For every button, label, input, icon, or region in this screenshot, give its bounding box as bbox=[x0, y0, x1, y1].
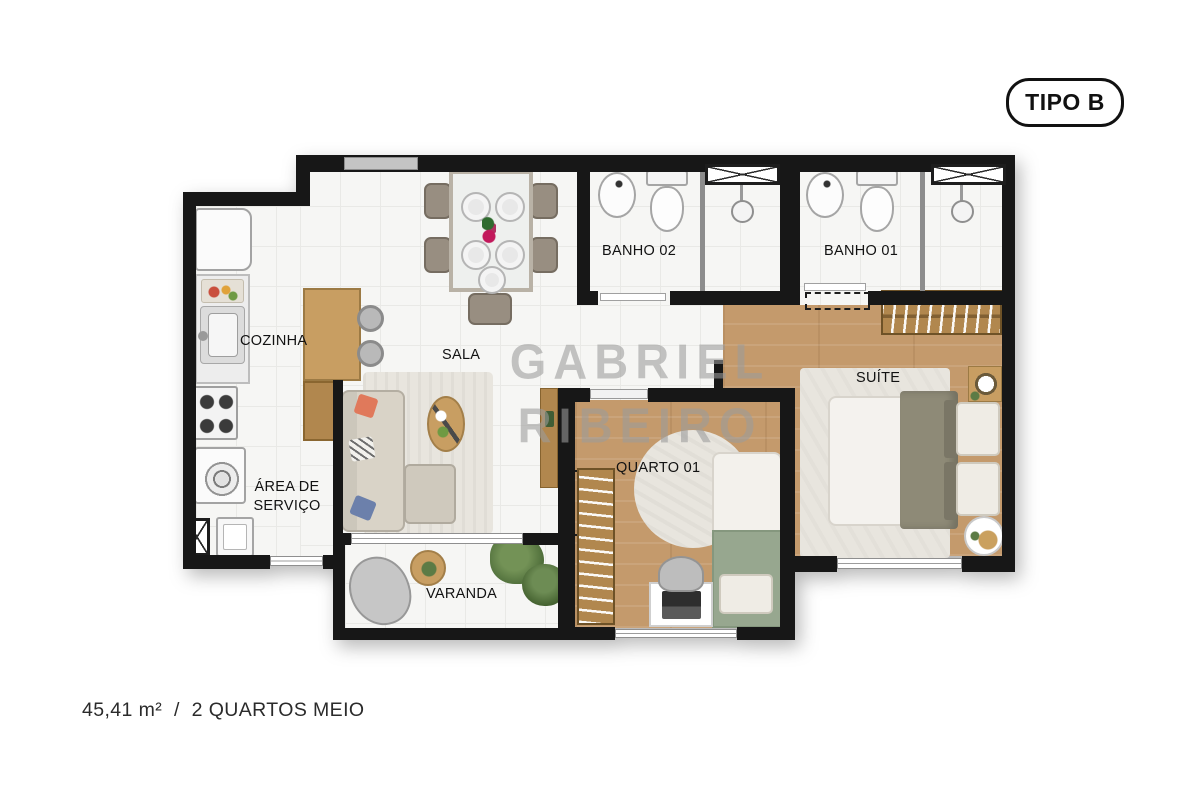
desk-chair bbox=[658, 556, 704, 592]
caption-description: 2 QUARTOS MEIO bbox=[192, 699, 365, 721]
bar-stool bbox=[357, 340, 384, 367]
wall-banho02-left bbox=[577, 155, 590, 305]
wall-varanda-bottom bbox=[333, 628, 575, 640]
unit-type-badge: TIPO B bbox=[1006, 78, 1124, 127]
bathroom-sink bbox=[598, 172, 636, 218]
watermark-line1: GABRIEL bbox=[500, 329, 780, 393]
bar-stool bbox=[357, 305, 384, 332]
sink-faucet bbox=[198, 331, 208, 341]
wall-sala-varanda-left-stub bbox=[343, 533, 351, 545]
dining-chair bbox=[424, 237, 452, 273]
suite-nightstand bbox=[968, 366, 1002, 402]
caption-area: 45,41 m² bbox=[82, 699, 162, 721]
watermark-line2: RIBEIRO bbox=[500, 393, 780, 457]
window-quarto01 bbox=[615, 629, 737, 638]
place-setting bbox=[478, 266, 506, 294]
wall-banho02-bottom-left bbox=[577, 291, 598, 305]
door-banho02 bbox=[600, 293, 666, 301]
wall-suite-bottom-right bbox=[962, 556, 1015, 572]
place-setting bbox=[495, 240, 525, 270]
label-area-servico: ÁREA DE SERVIÇO bbox=[250, 478, 324, 516]
fridge bbox=[195, 208, 252, 271]
label-area-servico-line2: SERVIÇO bbox=[253, 498, 320, 514]
wall-banho02-bottom-right bbox=[670, 291, 782, 305]
wall-quarto-suite bbox=[780, 388, 795, 640]
shower-head bbox=[951, 200, 974, 223]
label-area-servico-line1: ÁREA DE bbox=[255, 479, 320, 495]
dining-chair bbox=[424, 183, 452, 219]
laundry-tank bbox=[216, 517, 254, 557]
laptop bbox=[662, 591, 701, 619]
door-servico bbox=[270, 556, 323, 566]
window-banho02 bbox=[705, 164, 780, 185]
sink-basin bbox=[208, 313, 238, 357]
tank-basin bbox=[223, 524, 247, 550]
wall-right bbox=[1002, 155, 1015, 572]
wall-servico-bottom-left bbox=[183, 555, 270, 569]
quarto-bed-top bbox=[712, 452, 782, 534]
plan-caption: 45,41 m² / 2 QUARTOS MEIO bbox=[82, 699, 370, 722]
toilet bbox=[646, 170, 688, 186]
dining-chair bbox=[530, 183, 558, 219]
wall-suite-bottom-left bbox=[795, 556, 837, 572]
kitchen-sink bbox=[200, 306, 245, 364]
bathroom-sink bbox=[806, 172, 844, 218]
window-suite bbox=[837, 558, 962, 569]
wall-left bbox=[183, 192, 196, 569]
shower-partition bbox=[920, 172, 925, 291]
label-cozinha: COZINHA bbox=[240, 332, 307, 351]
dining-chair bbox=[468, 293, 512, 325]
suite-tray-table bbox=[964, 516, 1004, 556]
place-setting bbox=[495, 192, 525, 222]
shower-head bbox=[731, 200, 754, 223]
suite-dresser-overhead bbox=[805, 292, 870, 310]
floor-top-band bbox=[300, 166, 1002, 305]
entry-door bbox=[344, 157, 418, 170]
suite-pillow bbox=[956, 462, 1000, 516]
kitchen-tall-cabinet bbox=[303, 381, 336, 441]
suite-pillow bbox=[956, 402, 1000, 456]
caption-separator: / bbox=[174, 699, 180, 721]
kitchen-island bbox=[303, 288, 361, 381]
dining-table bbox=[449, 170, 533, 292]
wall-bathrooms-middle bbox=[780, 155, 800, 305]
label-quarto01: QUARTO 01 bbox=[616, 459, 700, 478]
toilet bbox=[856, 170, 898, 186]
sliding-door-varanda bbox=[351, 533, 523, 544]
flower-centerpiece bbox=[482, 214, 496, 246]
wall-quarto-bottom-right bbox=[737, 627, 795, 640]
label-suite: SUÍTE bbox=[856, 369, 900, 388]
cutting-board bbox=[201, 279, 244, 303]
wall-sala-varanda-right-stub bbox=[523, 533, 558, 545]
label-banho02: BANHO 02 bbox=[602, 242, 676, 261]
cushion-zigzag bbox=[348, 436, 375, 462]
quarto-wardrobe-rack bbox=[577, 468, 615, 625]
door-banho01 bbox=[804, 283, 866, 291]
toilet-bowl bbox=[860, 186, 894, 232]
quarto-pillow bbox=[719, 574, 773, 614]
wall-varanda-left bbox=[333, 543, 345, 640]
window-banho01 bbox=[931, 164, 1006, 185]
floorplan-page: COZINHA SALA BANHO 02 BANHO 01 SUÍTE QUA… bbox=[0, 0, 1200, 800]
coffee-table bbox=[427, 396, 465, 452]
toilet-bowl bbox=[650, 186, 684, 232]
label-varanda: VARANDA bbox=[426, 585, 497, 604]
label-sala: SALA bbox=[442, 346, 480, 365]
wall-banho01-bottom bbox=[868, 291, 1002, 305]
varanda-side-table bbox=[410, 550, 446, 586]
washing-machine bbox=[194, 447, 246, 504]
stove bbox=[192, 386, 238, 440]
sofa-chaise bbox=[404, 464, 456, 524]
label-banho01: BANHO 01 bbox=[824, 242, 898, 261]
dining-chair bbox=[530, 237, 558, 273]
wall-sala-left bbox=[333, 380, 343, 543]
watermark: GABRIEL RIBEIRO bbox=[500, 329, 780, 457]
shower-partition bbox=[700, 172, 705, 291]
wall-step-horizontal bbox=[183, 192, 310, 206]
